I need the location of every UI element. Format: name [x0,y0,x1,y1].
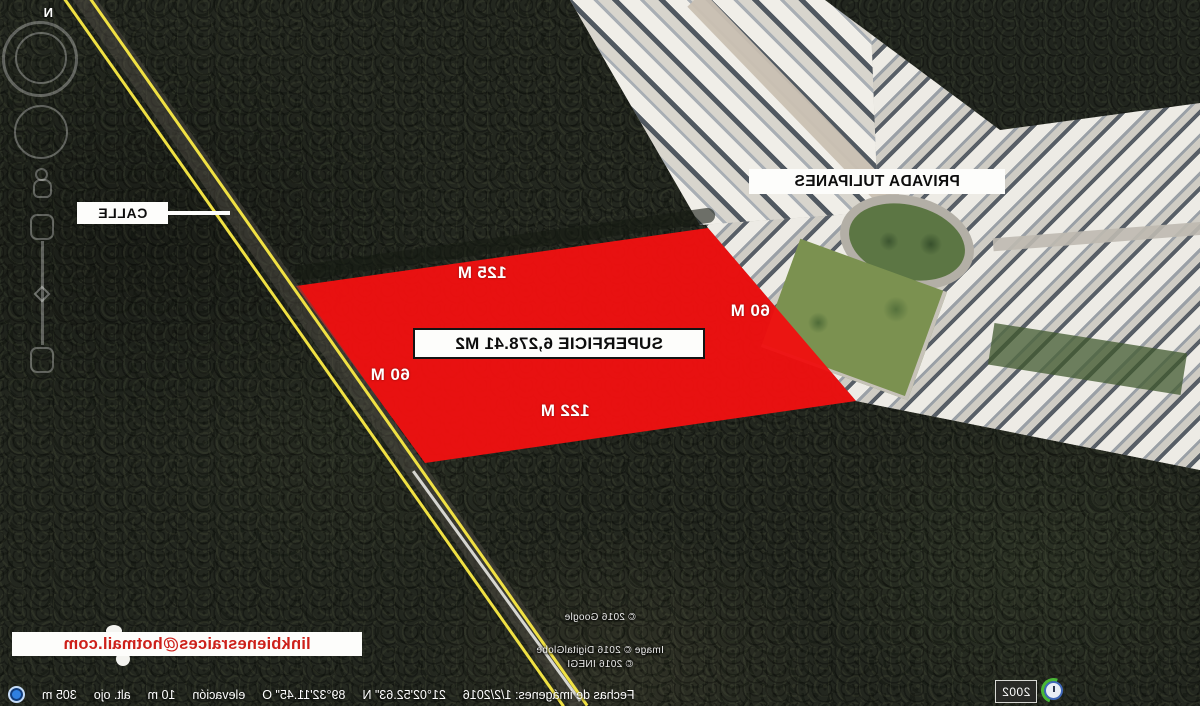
longitude-text: 89°32'11.45" O [262,688,345,702]
parcel-side-right-label: 60 M [695,301,805,321]
latitude-text: 21°02'52.63" N [362,688,445,702]
street-callout-line [167,211,230,215]
zoom-in-button[interactable] [30,214,54,240]
elevation-value: 10 m [148,688,176,702]
zoom-slider-handle[interactable] [34,286,51,303]
zoom-out-button[interactable] [30,347,54,373]
compass-inner-ring [15,32,67,84]
pegman-body-icon[interactable] [33,179,52,198]
compass-north-label: N [44,5,53,20]
streaming-indicator-icon [8,686,25,703]
elevation-label: elevación [192,688,245,702]
history-clock-icon[interactable] [1044,681,1063,700]
parcel-area-label: SUPERFICIE 6,278.41 M2 [413,328,705,359]
attribution-digitalglobe: Image © 2016 DigitalGlobe [0,645,1200,656]
imagery-date-text: Fechas de imágenes: 1/2/2016 [463,688,635,702]
imagery-year-box[interactable]: 2002 [995,680,1037,703]
neighborhood-name-label: PRIVADA TULIPANES [749,169,1005,194]
street-callout-label: CALLE [77,202,168,224]
eye-altitude-label: alt. ojo [94,688,131,702]
clock-hand-icon [1053,686,1055,692]
parcel-side-top-label: 125 M [427,263,537,283]
eye-altitude-value: 305 m [42,688,77,702]
status-bar: Fechas de imágenes: 1/2/2016 21°02'52.63… [8,686,634,703]
attribution-google: © 2016 Google [0,612,1200,623]
google-earth-window: 125 M 60 M 60 M 122 M SUPERFICIE 6,278.4… [0,0,1200,706]
parcel-side-bottom-label: 122 M [510,401,620,421]
satellite-map-canvas[interactable]: 125 M 60 M 60 M 122 M SUPERFICIE 6,278.4… [0,0,1200,706]
parcel-side-left-label: 60 M [335,365,445,385]
pan-ring[interactable] [14,105,68,159]
attribution-inegi: © 2016 INEGI [0,659,1200,670]
